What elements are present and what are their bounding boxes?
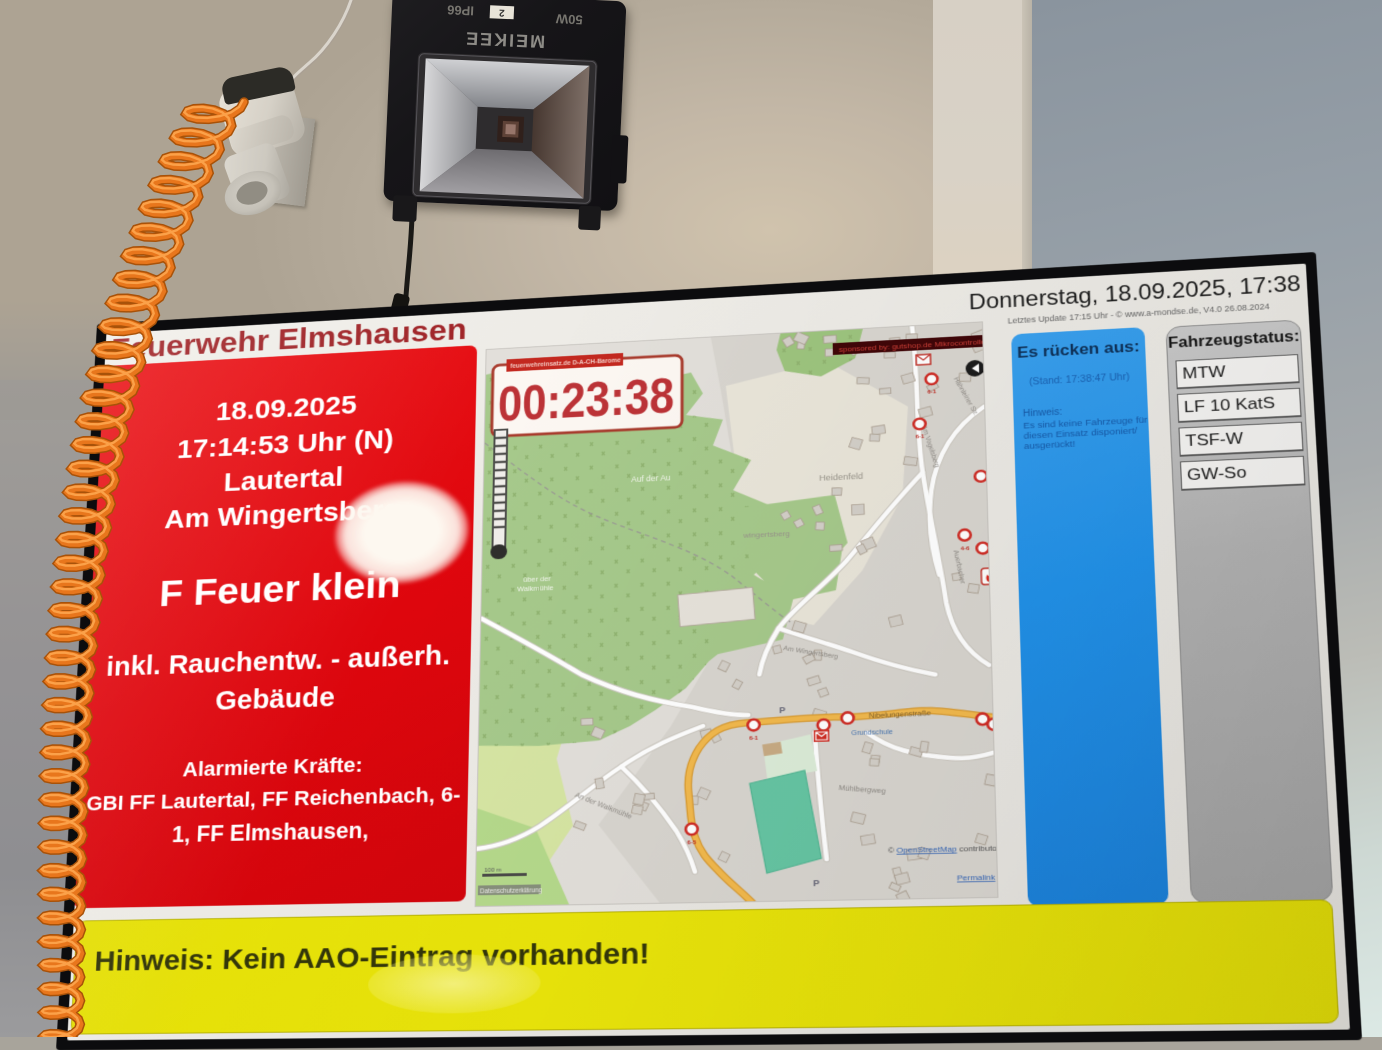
svg-text:P: P [813, 878, 819, 888]
svg-text:00:23:38: 00:23:38 [498, 367, 675, 432]
svg-text:Auf der Au: Auf der Au [631, 473, 670, 484]
svg-text:6-1: 6-1 [915, 434, 924, 441]
svg-text:Permalink: Permalink [957, 874, 996, 883]
svg-text:Walkmühle: Walkmühle [517, 585, 554, 594]
svg-text:6-5: 6-5 [687, 840, 696, 847]
svg-text:über der: über der [523, 575, 552, 584]
svg-text:Datenschutzerklärung: Datenschutzerklärung [480, 888, 542, 896]
svg-text:6-1: 6-1 [927, 389, 936, 396]
svg-text:Grundschule: Grundschule [851, 729, 894, 737]
svg-text:100 m: 100 m [484, 867, 501, 874]
svg-text:Heidenfeld: Heidenfeld [819, 471, 863, 483]
svg-text:P: P [779, 705, 785, 715]
svg-text:6-1: 6-1 [749, 735, 758, 742]
svg-text:4-6: 4-6 [960, 546, 969, 553]
